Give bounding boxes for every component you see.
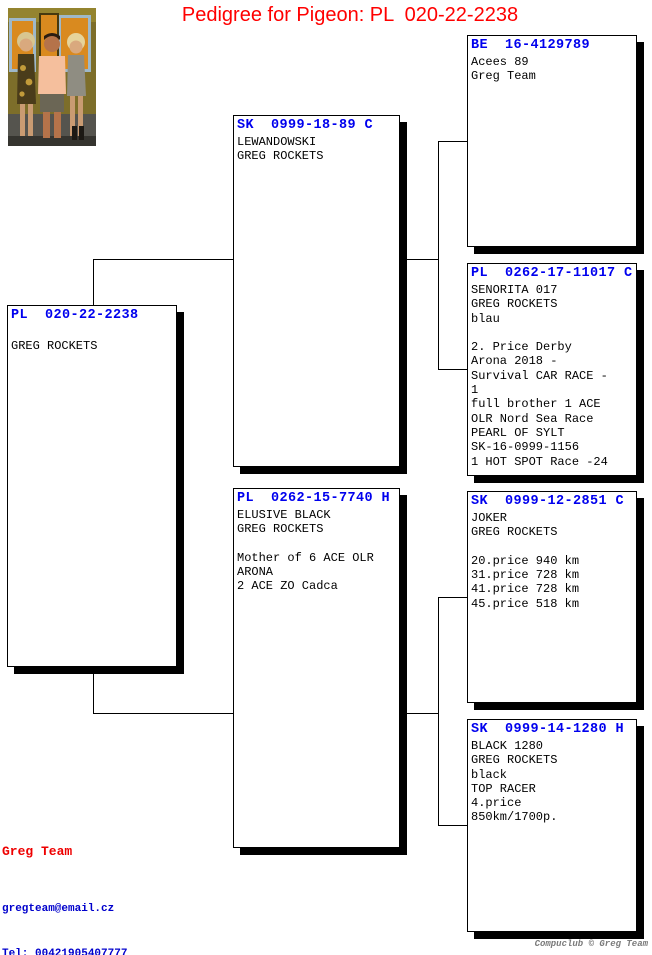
- ring-number-dam: PL 0262-15-7740 H: [234, 489, 399, 507]
- pedigree-box-line: Survival CAR RACE -: [471, 369, 636, 383]
- pedigree-box-line: ARONA: [237, 565, 399, 579]
- pedigree-box-line: 2 ACE ZO Cadca: [237, 579, 399, 593]
- pedigree-box-line: 20.price 940 km: [471, 554, 636, 568]
- pedigree-box-line: ELUSIVE BLACK: [237, 508, 399, 522]
- pedigree-box-line: [237, 537, 399, 551]
- ring-number-grandsire-paternal: BE 16-4129789: [468, 36, 636, 54]
- connector-line: [438, 597, 467, 598]
- pedigree-box-line: GREG ROCKETS: [471, 297, 636, 311]
- pigeon-details-grandsire-paternal: Acees 89Greg Team: [468, 54, 636, 84]
- ring-number-granddam-paternal: PL 0262-17-11017 C: [468, 264, 636, 282]
- pigeon-details-subject: GREG ROCKETS: [8, 324, 176, 354]
- pigeon-details-granddam-paternal: SENORITA 017GREG ROCKETSblau 2. Price De…: [468, 282, 636, 469]
- pedigree-box-granddam-maternal[interactable]: SK 0999-14-1280 H BLACK 1280GREG ROCKETS…: [467, 719, 637, 932]
- connector-line: [438, 369, 467, 370]
- pedigree-box-line: PEARL OF SYLT: [471, 426, 636, 440]
- connector-line: [93, 259, 233, 260]
- pigeon-details-granddam-maternal: BLACK 1280GREG ROCKETSblackTOP RACER4.pr…: [468, 738, 636, 825]
- pedigree-page: Pedigree for Pigeon: PL 020-22-2238: [0, 0, 652, 955]
- ring-number-subject: PL 020-22-2238: [8, 306, 176, 324]
- connector-line: [438, 141, 439, 370]
- pedigree-box-line: JOKER: [471, 511, 636, 525]
- ring-number-granddam-maternal: SK 0999-14-1280 H: [468, 720, 636, 738]
- breeder-contact: gregteam@email.cz Tel: 00421905407777 Te…: [2, 872, 127, 955]
- pedigree-box-line: 4.price: [471, 796, 636, 810]
- pedigree-box-line: Greg Team: [471, 69, 636, 83]
- pigeon-details-sire: LEWANDOWSKIGREG ROCKETS: [234, 134, 399, 164]
- pedigree-box-line: LEWANDOWSKI: [237, 135, 399, 149]
- connector-line: [438, 141, 467, 142]
- pedigree-box-line: OLR Nord Sea Race: [471, 412, 636, 426]
- pedigree-box-line: Acees 89: [471, 55, 636, 69]
- breeder-email: gregteam@email.cz: [2, 902, 127, 917]
- pedigree-box-line: GREG ROCKETS: [237, 149, 399, 163]
- pedigree-box-grandsire-maternal[interactable]: SK 0999-12-2851 C JOKERGREG ROCKETS 20.p…: [467, 491, 637, 703]
- pedigree-box-line: TOP RACER: [471, 782, 636, 796]
- pigeon-details-dam: ELUSIVE BLACKGREG ROCKETS Mother of 6 AC…: [234, 507, 399, 594]
- pedigree-box-line: 1 HOT SPOT Race -24: [471, 455, 636, 469]
- pedigree-box-line: black: [471, 768, 636, 782]
- ring-number-sire: SK 0999-18-89 C: [234, 116, 399, 134]
- breeder-phone-1: Tel: 00421905407777: [2, 947, 127, 955]
- pedigree-box-line: 2. Price Derby: [471, 340, 636, 354]
- pedigree-box-subject[interactable]: PL 020-22-2238 GREG ROCKETS: [7, 305, 177, 667]
- connector-line: [93, 259, 94, 306]
- pedigree-box-line: GREG ROCKETS: [471, 753, 636, 767]
- pedigree-box-line: [11, 325, 176, 339]
- pigeon-details-grandsire-maternal: JOKERGREG ROCKETS 20.price 940 km31.pric…: [468, 510, 636, 611]
- pedigree-box-line: full brother 1 ACE: [471, 397, 636, 411]
- connector-line: [400, 713, 438, 714]
- pedigree-box-line: SK-16-0999-1156: [471, 440, 636, 454]
- pedigree-box-line: blau: [471, 312, 636, 326]
- pedigree-box-line: 1: [471, 383, 636, 397]
- pedigree-box-sire[interactable]: SK 0999-18-89 C LEWANDOWSKIGREG ROCKETS: [233, 115, 400, 467]
- pedigree-box-line: 41.price 728 km: [471, 582, 636, 596]
- pedigree-box-line: 31.price 728 km: [471, 568, 636, 582]
- connector-line: [438, 825, 467, 826]
- breeder-name: Greg Team: [2, 844, 72, 859]
- connector-line: [93, 667, 94, 714]
- pedigree-box-line: GREG ROCKETS: [11, 339, 176, 353]
- breeder-photo-image: [8, 8, 96, 146]
- pedigree-box-line: [471, 326, 636, 340]
- pedigree-box-line: GREG ROCKETS: [471, 525, 636, 539]
- connector-line: [93, 713, 233, 714]
- compuclub-watermark: Compuclub © Greg Team: [535, 939, 648, 949]
- connector-line: [438, 597, 439, 826]
- pedigree-box-line: BLACK 1280: [471, 739, 636, 753]
- pedigree-box-line: GREG ROCKETS: [237, 522, 399, 536]
- pedigree-box-line: 45.price 518 km: [471, 597, 636, 611]
- pedigree-box-line: SENORITA 017: [471, 283, 636, 297]
- connector-line: [400, 259, 438, 260]
- pedigree-box-dam[interactable]: PL 0262-15-7740 H ELUSIVE BLACKGREG ROCK…: [233, 488, 400, 848]
- ring-number-grandsire-maternal: SK 0999-12-2851 C: [468, 492, 636, 510]
- pedigree-box-grandsire-paternal[interactable]: BE 16-4129789 Acees 89Greg Team: [467, 35, 637, 247]
- pedigree-box-line: Mother of 6 ACE OLR: [237, 551, 399, 565]
- pedigree-box-line: [471, 540, 636, 554]
- breeder-photo: [8, 8, 96, 146]
- pedigree-box-line: Arona 2018 -: [471, 354, 636, 368]
- page-title: Pedigree for Pigeon: PL 020-22-2238: [160, 4, 540, 27]
- pedigree-box-line: 850km/1700p.: [471, 810, 636, 824]
- pedigree-box-granddam-paternal[interactable]: PL 0262-17-11017 C SENORITA 017GREG ROCK…: [467, 263, 637, 476]
